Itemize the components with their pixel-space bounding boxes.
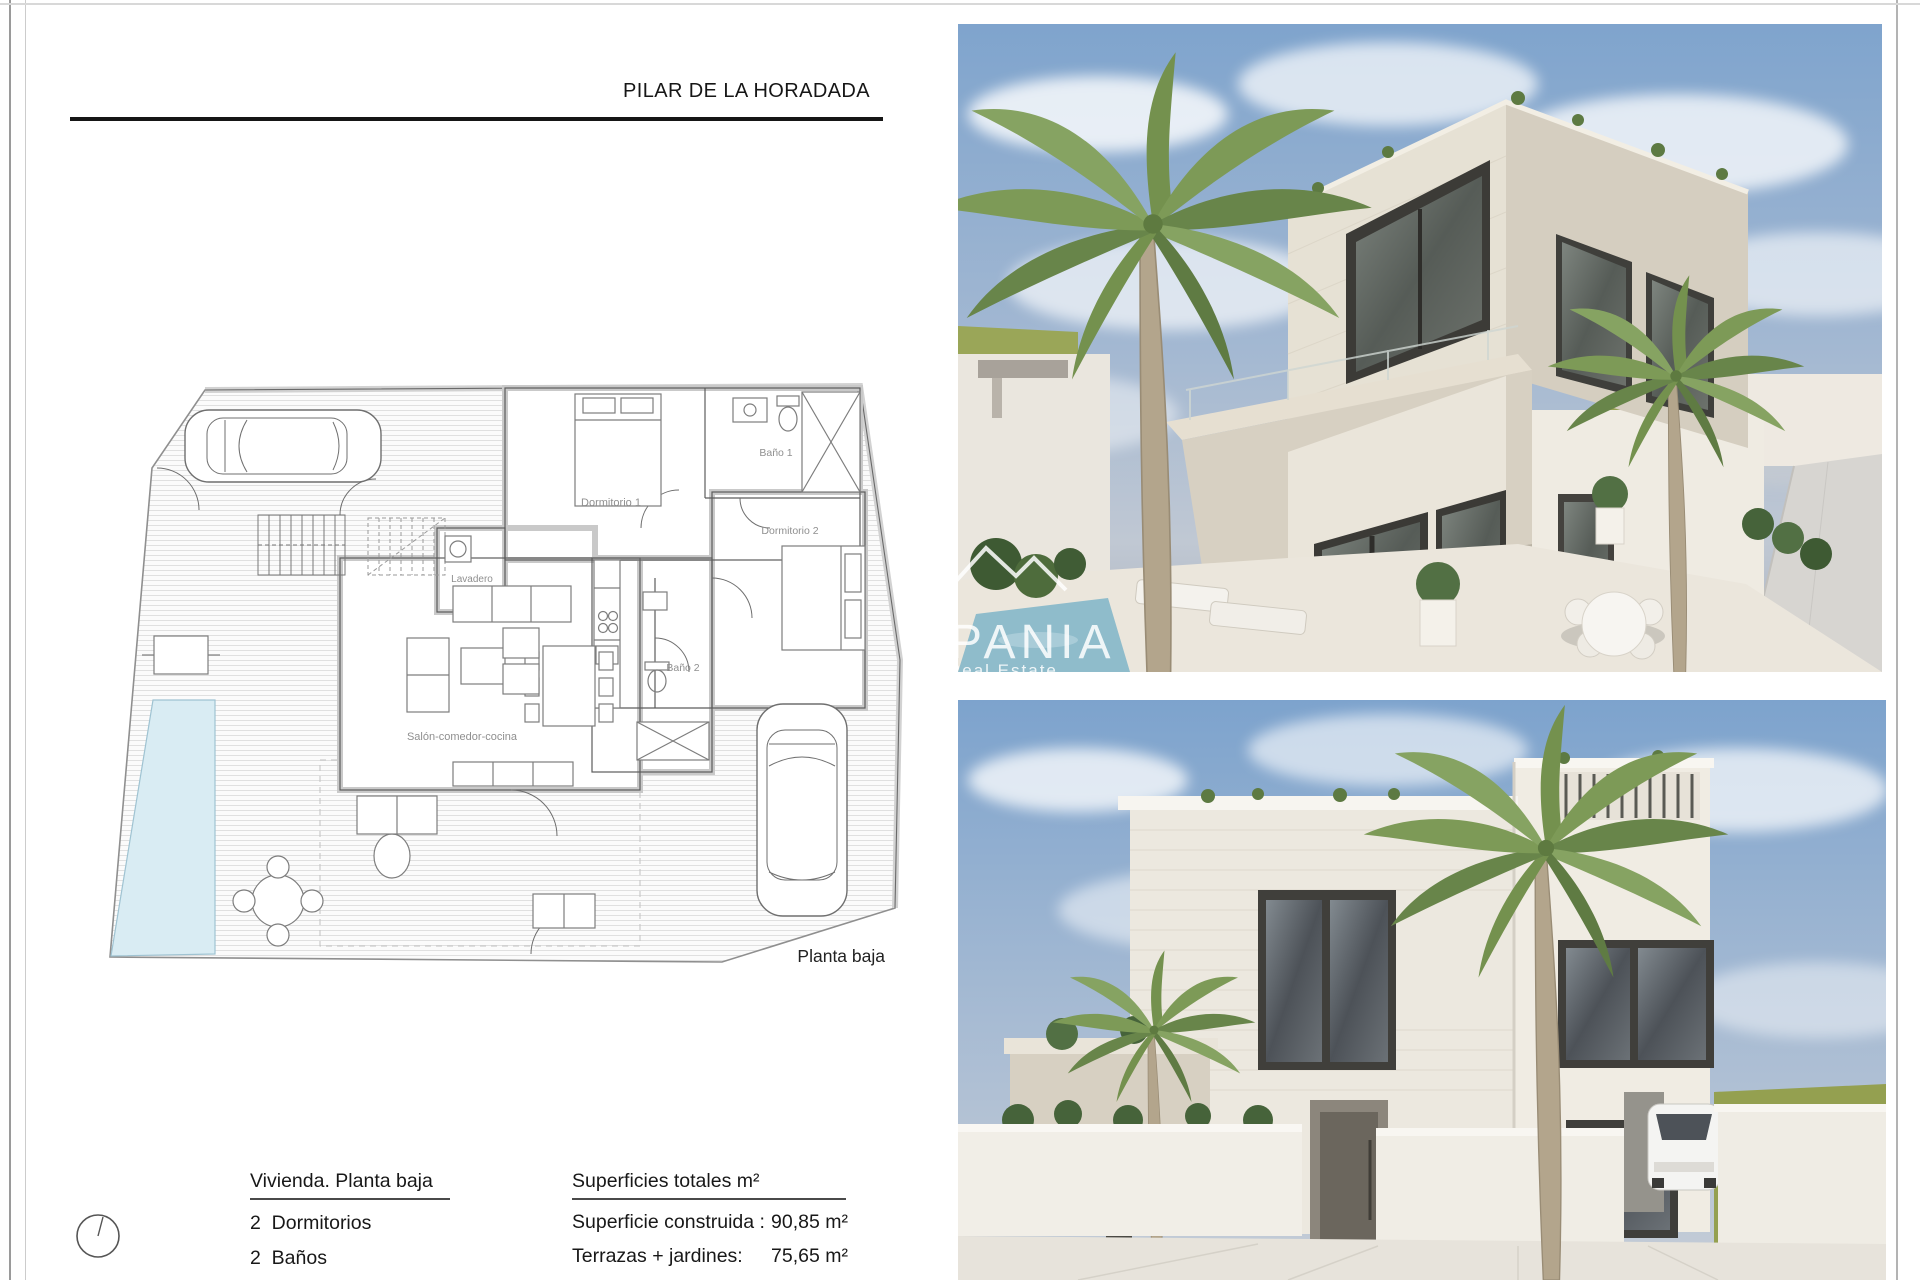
dwelling-heading: Vivienda. Planta baja xyxy=(250,1170,460,1193)
area-label: Terrazas + jardines: xyxy=(572,1245,743,1268)
render-corner-view: PANIA Real Estate xyxy=(958,24,1882,672)
area-row-terraces: Terrazas + jardines: 75,65 m² xyxy=(572,1245,848,1268)
plan-sheet: PILAR DE LA HORADADA xyxy=(0,0,1920,1280)
area-row-built: Superficie construida : 90,85 m² xyxy=(572,1211,848,1234)
room-label-bano-2: Baño 2 xyxy=(666,662,699,674)
areas-heading: Superficies totales m² xyxy=(572,1170,848,1193)
driveway-car xyxy=(757,704,847,916)
room-label-dormitorio-1: Dormitorio 1 xyxy=(581,497,641,509)
north-compass-icon xyxy=(72,1210,124,1262)
areas-summary: Superficies totales m² Superficie constr… xyxy=(572,1170,848,1268)
area-label: Superficie construida : xyxy=(572,1211,770,1234)
dwelling-item-bedrooms: 2 Dormitorios xyxy=(250,1212,460,1235)
floor-plan: Dormitorio 1 Baño 1 Dormitorio 2 Baño 2 … xyxy=(45,378,905,978)
page-edge-top xyxy=(0,3,1920,5)
floor-plan-drawing: Dormitorio 1 Baño 1 Dormitorio 2 Baño 2 … xyxy=(45,378,905,978)
dwelling-item-bathrooms: 2 Baños xyxy=(250,1247,460,1270)
watermark-tagline: Real Estate xyxy=(958,661,1058,672)
plan-caption: Planta baja xyxy=(770,946,885,967)
dwelling-heading-rule xyxy=(250,1198,450,1200)
areas-heading-rule xyxy=(572,1198,846,1200)
title-rule xyxy=(70,117,883,121)
carport-car xyxy=(185,410,381,482)
page-edge-right xyxy=(1896,0,1898,1280)
page-title: PILAR DE LA HORADADA xyxy=(560,80,870,103)
page-edge-left-inner xyxy=(25,0,26,1280)
room-label-lavadero: Lavadero xyxy=(451,574,493,585)
page-edge-left-outer xyxy=(9,0,11,1280)
room-label-bano-1: Baño 1 xyxy=(759,447,792,459)
room-label-dormitorio-2: Dormitorio 2 xyxy=(761,525,818,537)
render-front-view xyxy=(958,700,1886,1280)
area-value: 75,65 m² xyxy=(771,1245,848,1268)
room-label-salon: Salón-comedor-cocina xyxy=(407,731,518,743)
area-value: 90,85 m² xyxy=(771,1211,848,1234)
parked-car xyxy=(1648,1104,1720,1190)
dwelling-summary: Vivienda. Planta baja 2 Dormitorios 2 Ba… xyxy=(250,1170,460,1270)
